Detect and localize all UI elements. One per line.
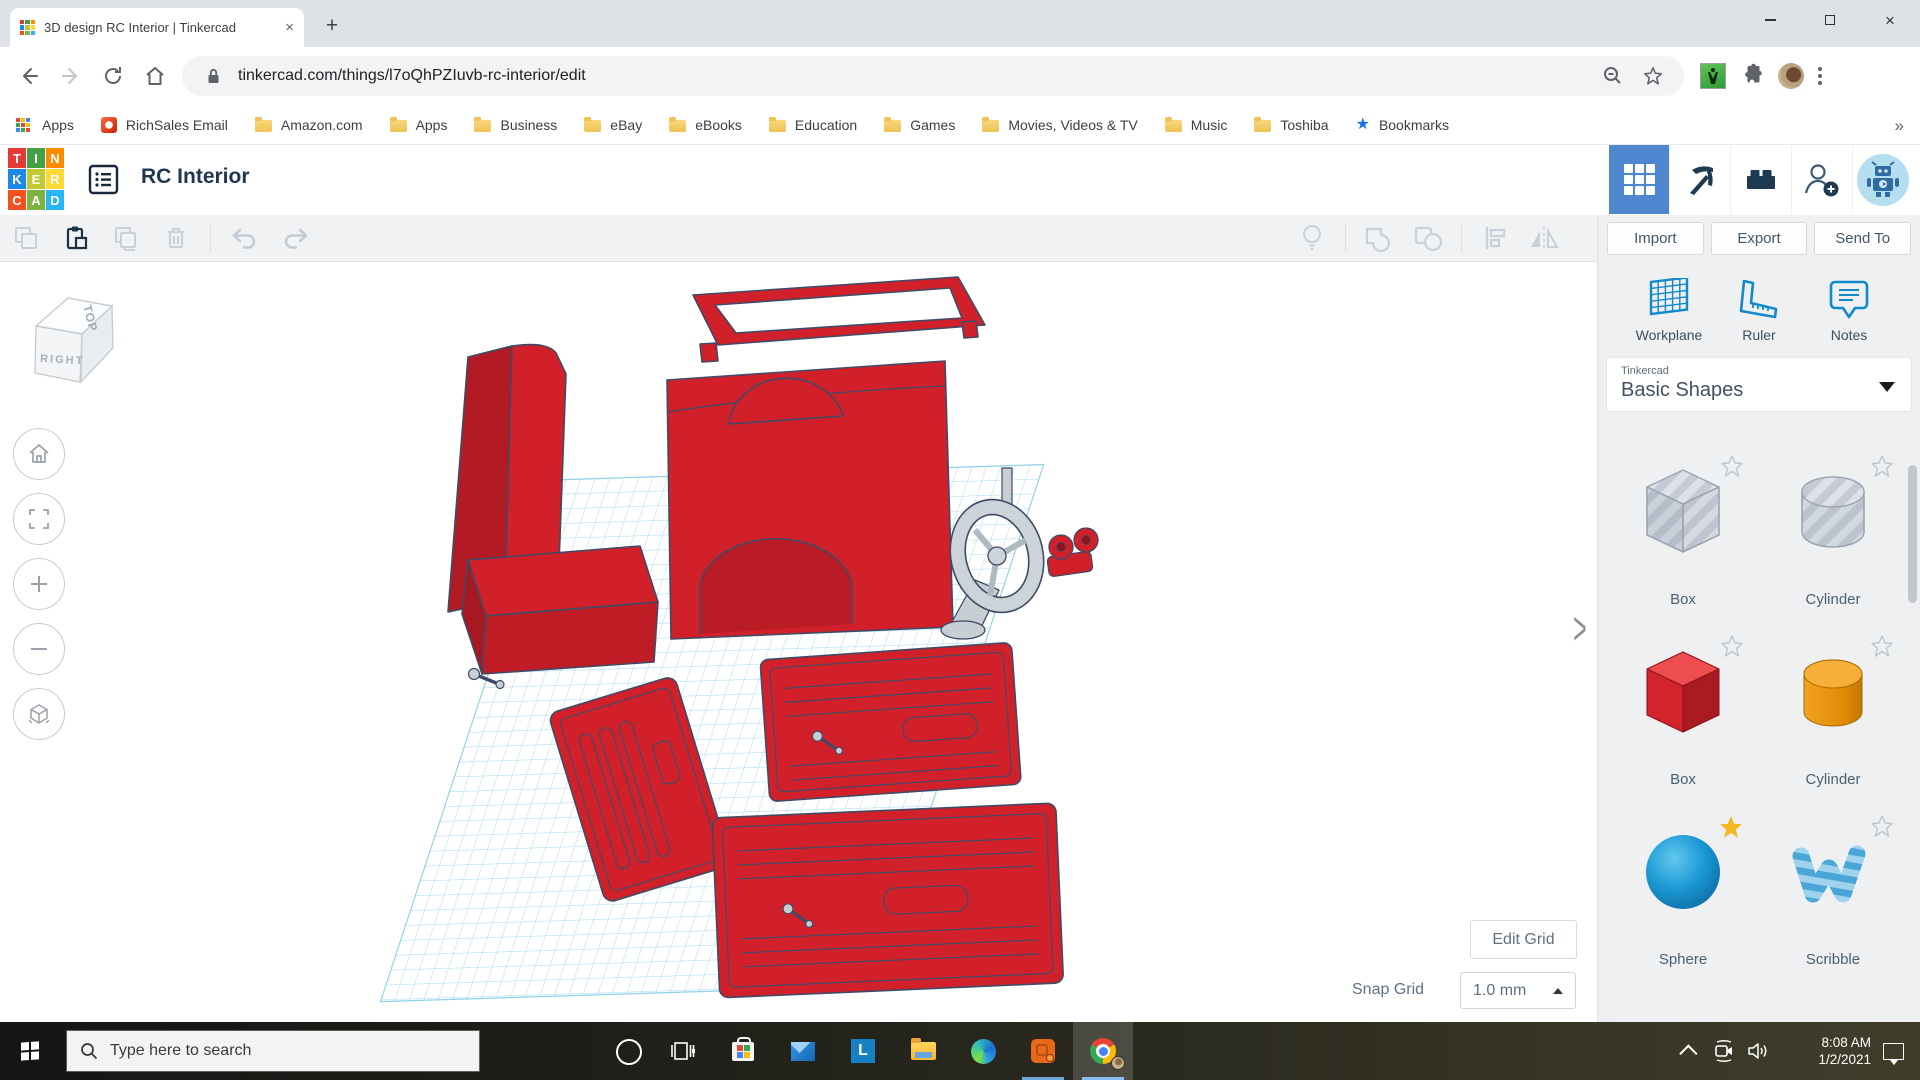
delete-icon[interactable] bbox=[160, 222, 192, 254]
window-maximize-icon[interactable] bbox=[1800, 0, 1860, 40]
cortana-icon[interactable] bbox=[616, 1039, 642, 1065]
shape-label: Box bbox=[1670, 771, 1696, 788]
tinkercad-header: TIN KER CAD RC Interior bbox=[0, 145, 1920, 216]
chrome-profile-badge bbox=[1111, 1056, 1125, 1070]
workplane-tool[interactable]: Workplane bbox=[1624, 278, 1714, 343]
bookmark-item[interactable]: Toshiba bbox=[1254, 117, 1328, 133]
favorite-star-icon[interactable] bbox=[1870, 814, 1894, 843]
duplicate-icon[interactable] bbox=[110, 222, 142, 254]
bookmark-icon bbox=[16, 118, 20, 122]
browser-tab[interactable]: 3D design RC Interior | Tinkercad × bbox=[10, 8, 304, 47]
lock-icon[interactable] bbox=[198, 68, 228, 84]
favorite-star-icon[interactable] bbox=[1870, 454, 1894, 483]
mirror-icon[interactable] bbox=[1528, 222, 1560, 254]
show-all-lightbulb-icon[interactable] bbox=[1296, 222, 1328, 254]
window-minimize-icon[interactable] bbox=[1740, 0, 1800, 40]
redo-icon[interactable] bbox=[279, 222, 311, 254]
bookmark-icon bbox=[1165, 120, 1182, 132]
view-cube-right-label: RIGHT bbox=[40, 353, 85, 367]
l-app-icon[interactable]: L bbox=[833, 1022, 893, 1080]
design-canvas: TOP RIGHT > Edit Grid Snap Grid 1 bbox=[0, 262, 1597, 1022]
forward-icon[interactable] bbox=[50, 55, 92, 97]
bookmark-icon bbox=[884, 120, 901, 132]
volume-icon[interactable] bbox=[1741, 1040, 1775, 1062]
dashboard-grid-icon[interactable] bbox=[1609, 145, 1669, 214]
edit-toolbar bbox=[0, 215, 1597, 262]
extensions-row bbox=[1700, 62, 1822, 91]
ruler-tool[interactable]: Ruler bbox=[1714, 278, 1804, 343]
bookmark-item[interactable]: eBooks bbox=[669, 117, 742, 133]
bookmark-label: Toshiba bbox=[1280, 117, 1328, 133]
bookmark-icon bbox=[1356, 116, 1370, 134]
workplane-grid-icon bbox=[1645, 278, 1693, 320]
sphere-icon bbox=[1635, 822, 1731, 922]
paste-icon[interactable] bbox=[60, 222, 92, 254]
bookmark-icon bbox=[584, 120, 601, 132]
favorite-star-icon[interactable] bbox=[1720, 454, 1744, 483]
clock-time: 8:08 AM bbox=[1783, 1034, 1871, 1051]
shape-door-panel-middle[interactable] bbox=[760, 642, 1021, 801]
mail-icon[interactable] bbox=[773, 1022, 833, 1080]
tab-title: 3D design RC Interior | Tinkercad bbox=[44, 20, 276, 35]
store-icon[interactable] bbox=[713, 1022, 773, 1080]
snap-grid-label: Snap Grid bbox=[1352, 981, 1424, 999]
bookmark-label: Apps bbox=[42, 117, 74, 133]
header-nav bbox=[1609, 145, 1913, 214]
clock-date: 1/2/2021 bbox=[1783, 1051, 1871, 1068]
home-view-icon[interactable] bbox=[13, 428, 65, 480]
file-explorer-icon[interactable] bbox=[893, 1022, 953, 1080]
bookmark-icon bbox=[101, 117, 117, 133]
shape-tile-hole-box[interactable]: Box bbox=[1608, 458, 1758, 608]
menu-kebab-icon[interactable] bbox=[1818, 67, 1822, 85]
bookmark-item[interactable]: Education bbox=[769, 117, 857, 133]
ruler-label: Ruler bbox=[1742, 327, 1775, 343]
bookmarks-bar: Apps RichSales Email Amazon.com Apps Bus… bbox=[0, 105, 1920, 145]
bookmark-item[interactable]: Amazon.com bbox=[255, 117, 363, 133]
copy-icon[interactable] bbox=[10, 222, 42, 254]
fit-view-icon[interactable] bbox=[13, 493, 65, 545]
orange-app-icon[interactable] bbox=[1013, 1022, 1073, 1080]
library-caret-icon bbox=[1879, 382, 1895, 392]
tab-close-icon[interactable]: × bbox=[285, 20, 294, 35]
export-button[interactable]: Export bbox=[1711, 222, 1808, 255]
taskbar-clock[interactable]: 8:08 AM 1/2/2021 bbox=[1783, 1034, 1871, 1068]
bookmark-label: Bookmarks bbox=[1379, 117, 1449, 133]
shape-tile-hole-cylinder[interactable]: Cylinder bbox=[1758, 458, 1908, 608]
favorite-star-icon[interactable] bbox=[1870, 634, 1894, 663]
snap-grid-select[interactable]: 1.0 mm bbox=[1460, 972, 1576, 1009]
windows-logo-icon bbox=[21, 1042, 39, 1061]
send-to-button[interactable]: Send To bbox=[1814, 222, 1911, 255]
reload-icon[interactable] bbox=[92, 55, 134, 97]
ruler-icon bbox=[1736, 278, 1782, 320]
minecraft-pickaxe-icon[interactable] bbox=[1669, 145, 1730, 214]
orange-cylinder-icon bbox=[1785, 642, 1881, 742]
bookmark-label: eBay bbox=[610, 117, 642, 133]
design-properties-icon[interactable] bbox=[88, 164, 119, 200]
edge-icon[interactable] bbox=[953, 1022, 1013, 1080]
hole-cylinder-icon bbox=[1785, 462, 1881, 562]
url-text[interactable]: tinkercad.com/things/l7oQhPZIuvb-rc-inte… bbox=[238, 67, 1588, 85]
shape-pedals[interactable] bbox=[1047, 528, 1098, 577]
bookmark-icon bbox=[255, 120, 272, 132]
bookmark-label: Movies, Videos & TV bbox=[1008, 117, 1137, 133]
bookmark-star-icon[interactable] bbox=[1638, 65, 1668, 87]
bookmark-icon bbox=[669, 120, 686, 132]
bookmark-label: Apps bbox=[416, 117, 448, 133]
tray-chevron-icon[interactable] bbox=[1673, 1045, 1707, 1058]
shape-window-frame[interactable] bbox=[693, 277, 985, 362]
bookmark-icon bbox=[769, 120, 786, 132]
lego-brick-icon[interactable] bbox=[1730, 145, 1791, 214]
zoom-out-canvas-icon[interactable] bbox=[13, 623, 65, 675]
shape-label: Scribble bbox=[1806, 951, 1860, 968]
import-button[interactable]: Import bbox=[1607, 222, 1704, 255]
start-button[interactable] bbox=[10, 1031, 50, 1071]
shape-tile-sphere[interactable]: Sphere bbox=[1608, 818, 1758, 968]
bookmark-label: Music bbox=[1191, 117, 1228, 133]
bookmark-item[interactable]: Music bbox=[1165, 117, 1228, 133]
shapes-sidebar: Import Export Send To Workplane Rul bbox=[1597, 215, 1920, 1022]
lindy-extension-icon[interactable] bbox=[1700, 63, 1726, 89]
undo-icon[interactable] bbox=[229, 222, 261, 254]
bookmark-icon bbox=[1254, 120, 1271, 132]
shape-library-select[interactable]: Tinkercad Basic Shapes bbox=[1606, 357, 1912, 412]
bookmark-item[interactable]: RichSales Email bbox=[101, 117, 228, 133]
snap-grid-caret-icon bbox=[1553, 988, 1563, 994]
sidebar-scrollbar-thumb[interactable] bbox=[1908, 465, 1917, 603]
tinkercad-logo[interactable]: TIN KER CAD bbox=[8, 148, 64, 210]
ungroup-icon[interactable] bbox=[1412, 222, 1444, 254]
shape-tile-scribble[interactable]: Scribble bbox=[1758, 818, 1908, 968]
shape-label: Box bbox=[1670, 591, 1696, 608]
red-box-icon bbox=[1635, 642, 1731, 742]
shape-label: Cylinder bbox=[1805, 591, 1860, 608]
bookmark-item[interactable]: Movies, Videos & TV bbox=[982, 117, 1137, 133]
design-title[interactable]: RC Interior bbox=[141, 165, 250, 189]
window-controls: × bbox=[1740, 0, 1920, 40]
bookmark-item[interactable]: Bookmarks bbox=[1356, 116, 1449, 134]
bookmark-icon bbox=[982, 120, 999, 132]
search-icon bbox=[80, 1042, 98, 1060]
group-icon[interactable] bbox=[1363, 222, 1395, 254]
shape-label: Cylinder bbox=[1805, 771, 1860, 788]
bookmarks-overflow-chevron[interactable]: » bbox=[1895, 116, 1904, 136]
canvas-controls bbox=[13, 428, 65, 740]
chrome-icon[interactable] bbox=[1073, 1022, 1133, 1080]
snap-grid-value: 1.0 mm bbox=[1473, 982, 1553, 1000]
notes-tool[interactable]: Notes bbox=[1804, 278, 1894, 343]
back-icon[interactable] bbox=[8, 55, 50, 97]
shape-tile-orange-cylinder[interactable]: Cylinder bbox=[1758, 638, 1908, 788]
library-name: Basic Shapes bbox=[1621, 379, 1897, 402]
robot-avatar[interactable] bbox=[1852, 145, 1913, 214]
window-close-icon[interactable]: × bbox=[1860, 0, 1920, 40]
tinkercad-favicon-icon bbox=[20, 20, 35, 35]
task-view-icon[interactable] bbox=[653, 1022, 713, 1080]
zoom-in-icon[interactable] bbox=[13, 558, 65, 610]
bookmark-label: eBooks bbox=[695, 117, 742, 133]
shape-label: Sphere bbox=[1659, 951, 1707, 968]
taskbar-search-input[interactable]: Type here to search bbox=[66, 1030, 480, 1072]
align-icon[interactable] bbox=[1479, 222, 1511, 254]
windows-taskbar: Type here to search L 8:08 AM bbox=[0, 1022, 1920, 1080]
view-cube[interactable]: TOP RIGHT bbox=[26, 290, 118, 390]
zoom-out-icon[interactable] bbox=[1598, 65, 1628, 87]
bookmark-label: RichSales Email bbox=[126, 117, 228, 133]
bookmark-item[interactable]: eBay bbox=[584, 117, 642, 133]
collapse-panel-chevron[interactable]: > bbox=[1573, 603, 1586, 656]
library-brand: Tinkercad bbox=[1621, 365, 1897, 377]
bookmark-item[interactable]: Games bbox=[884, 117, 955, 133]
profile-avatar[interactable] bbox=[1778, 63, 1804, 89]
notes-bubble-icon bbox=[1827, 278, 1871, 320]
bookmark-label: Business bbox=[500, 117, 557, 133]
browser-tab-strip: 3D design RC Interior | Tinkercad × + × bbox=[0, 0, 1920, 47]
meet-now-camera-icon[interactable] bbox=[1707, 1040, 1741, 1062]
bookmark-item[interactable]: Apps bbox=[16, 117, 74, 133]
url-field[interactable]: tinkercad.com/things/l7oQhPZIuvb-rc-inte… bbox=[182, 56, 1684, 96]
bookmark-icon bbox=[474, 120, 491, 132]
3d-viewport[interactable] bbox=[0, 262, 1597, 1022]
new-tab-button[interactable]: + bbox=[318, 13, 346, 41]
action-center-icon[interactable] bbox=[1883, 1043, 1904, 1060]
bookmark-item[interactable]: Business bbox=[474, 117, 557, 133]
favorite-star-filled-icon[interactable] bbox=[1718, 814, 1744, 845]
browser-address-bar: tinkercad.com/things/l7oQhPZIuvb-rc-inte… bbox=[0, 47, 1920, 105]
home-icon[interactable] bbox=[134, 55, 176, 97]
bookmark-label: Amazon.com bbox=[281, 117, 363, 133]
invite-person-icon[interactable] bbox=[1791, 145, 1852, 214]
screen: 3D design RC Interior | Tinkercad × + × … bbox=[0, 0, 1920, 1080]
shape-grid: Box Cylinder bbox=[1598, 458, 1908, 968]
workplane-label: Workplane bbox=[1636, 327, 1703, 343]
hole-box-icon bbox=[1635, 462, 1731, 562]
shape-tile-red-box[interactable]: Box bbox=[1608, 638, 1758, 788]
shape-dashboard[interactable] bbox=[667, 361, 953, 639]
notes-label: Notes bbox=[1831, 327, 1868, 343]
search-placeholder: Type here to search bbox=[110, 1042, 251, 1060]
shape-door-panel-bottom[interactable] bbox=[712, 803, 1064, 998]
favorite-star-icon[interactable] bbox=[1720, 634, 1744, 663]
bookmark-label: Games bbox=[910, 117, 955, 133]
extensions-puzzle-icon[interactable] bbox=[1740, 62, 1764, 91]
bookmark-icon bbox=[390, 120, 407, 132]
bookmark-item[interactable]: Apps bbox=[390, 117, 448, 133]
perspective-toggle-icon[interactable] bbox=[13, 688, 65, 740]
scribble-icon bbox=[1785, 822, 1881, 922]
edit-grid-button[interactable]: Edit Grid bbox=[1470, 920, 1577, 959]
bookmark-label: Education bbox=[795, 117, 857, 133]
